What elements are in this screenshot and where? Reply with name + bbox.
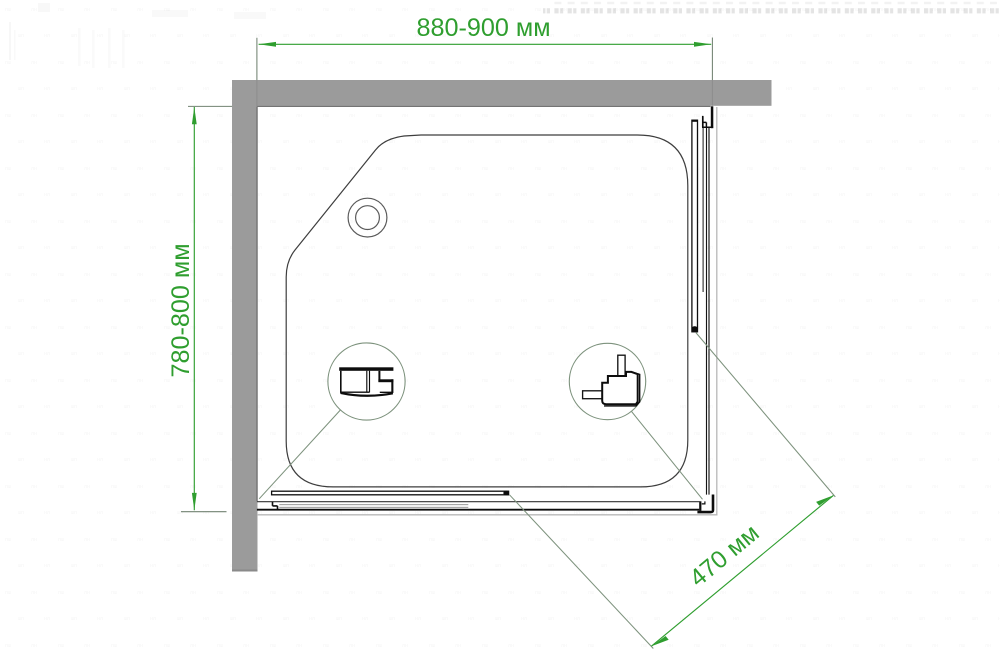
svg-text:880-900 мм: 880-900 мм [416,14,550,42]
svg-text:780-800 мм: 780-800 мм [167,243,195,377]
